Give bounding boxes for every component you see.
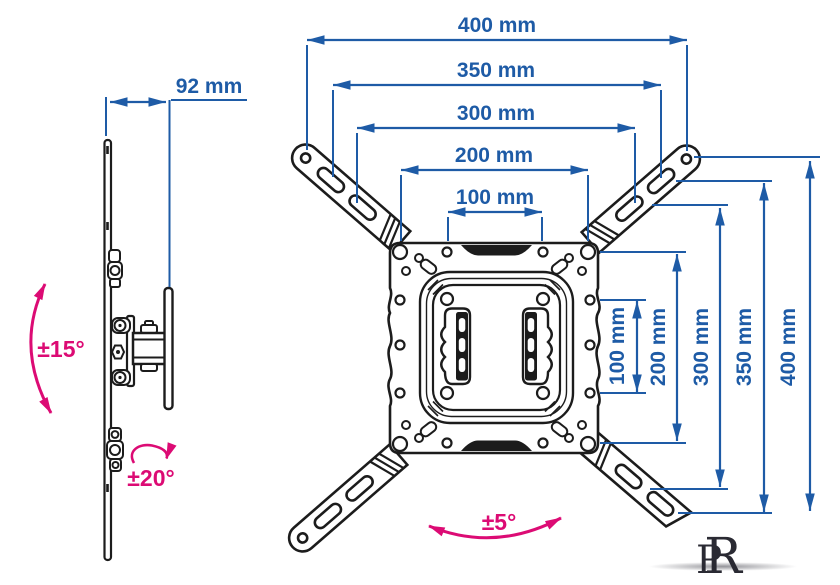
- dim-label-v-400mm: 400 mm: [776, 297, 802, 397]
- diagram-canvas: [0, 0, 840, 585]
- dim-label-h-200mm: 200 mm: [444, 143, 544, 169]
- dim-label-h-400mm: 400 mm: [447, 13, 547, 39]
- wall-mount-technical-diagram: 92 mm 400 mm 350 mm 300 mm 200 mm 100 mm…: [0, 0, 840, 585]
- dim-label-v-100mm: 100 mm: [605, 296, 631, 396]
- front-view-plate: [388, 243, 599, 453]
- dim-label-v-350mm: 350 mm: [732, 297, 758, 397]
- dim-label-h-350mm: 350 mm: [446, 58, 546, 84]
- logo-letter-r: R: [704, 527, 742, 585]
- brand-logo: PR: [696, 527, 742, 585]
- dim-label-v-300mm: 300 mm: [689, 297, 715, 397]
- rotation-range-label: ±5°: [462, 509, 536, 535]
- dim-label-depth-92mm: 92 mm: [170, 74, 248, 100]
- dim-label-h-300mm: 300 mm: [446, 101, 546, 127]
- side-view-drawing: [105, 140, 173, 560]
- tilt-range-label: ±15°: [24, 336, 98, 362]
- dim-label-v-200mm: 200 mm: [646, 297, 672, 397]
- dim-label-h-100mm: 100 mm: [445, 185, 545, 211]
- swivel-range-label: ±20°: [114, 465, 188, 491]
- swivel-curl-arrow: [132, 445, 167, 463]
